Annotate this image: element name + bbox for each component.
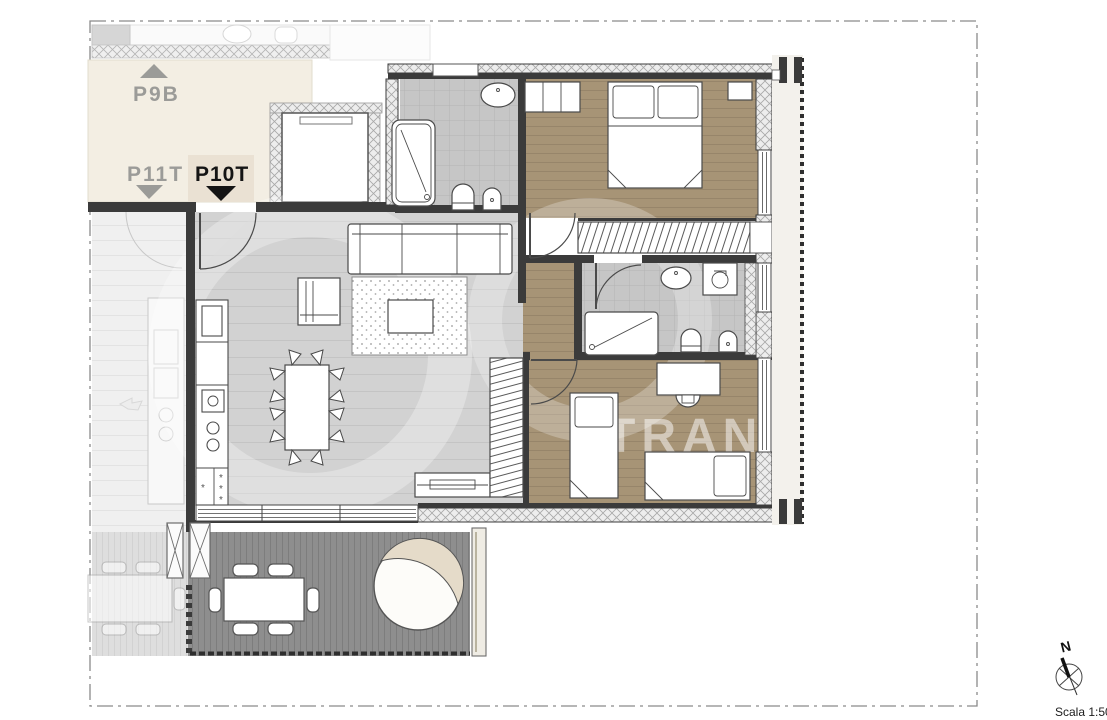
toilet <box>681 329 701 352</box>
washing-machine <box>703 263 737 295</box>
bidet <box>483 188 501 210</box>
terrace <box>88 523 486 656</box>
outdoor-chair <box>233 623 258 635</box>
elevator-door <box>300 117 352 124</box>
floor-plan-canvas: P9B P11T P10T TRAN <box>0 0 1107 720</box>
outdoor-chair <box>307 588 319 612</box>
terrace-planter-right <box>472 528 486 656</box>
stair-landing: P9B P11T P10T <box>88 60 382 203</box>
sideboard <box>415 473 490 497</box>
scale-label: Scala 1:50 <box>1055 705 1107 719</box>
nightstand <box>728 82 752 100</box>
pillar <box>794 499 802 524</box>
bathtub <box>392 120 435 206</box>
kitchen: * * * * <box>196 300 228 506</box>
round-daybed <box>374 538 464 630</box>
oven <box>202 306 222 336</box>
right-balcony <box>772 55 803 525</box>
dining-table <box>285 365 329 450</box>
coffee-table <box>388 300 433 333</box>
rug <box>352 277 467 355</box>
sink <box>661 267 691 289</box>
top-wall-niche <box>433 64 478 76</box>
bedroom2-window <box>758 358 771 452</box>
single-bed-horizontal <box>645 452 750 500</box>
hob-burner <box>207 422 219 434</box>
outdoor-chair <box>233 564 258 576</box>
hob-burner <box>207 439 219 451</box>
double-bed <box>608 82 702 188</box>
sink <box>481 83 515 107</box>
vent-symbol: * <box>219 473 223 484</box>
pillar <box>794 57 802 83</box>
unit-label-p10t: P10T <box>195 163 249 186</box>
outdoor-table <box>224 578 304 621</box>
bathroom2-window <box>758 263 771 312</box>
balcony-floor <box>772 55 803 525</box>
balcony-bracket <box>772 70 780 80</box>
elevator-cabin <box>282 113 368 202</box>
sofa <box>348 224 512 274</box>
wardrobe2 <box>490 358 523 497</box>
unit-label-p9b: P9B <box>133 83 180 106</box>
wardrobe1 <box>578 222 772 253</box>
outdoor-chair <box>268 564 293 576</box>
vent-symbol: * <box>219 495 223 506</box>
vent-symbol: * <box>219 484 223 495</box>
elevator <box>270 103 382 203</box>
pillar <box>779 499 787 524</box>
living-room-window <box>196 505 418 521</box>
dresser <box>525 82 580 112</box>
armchair <box>298 278 340 325</box>
neighbour-unit-top <box>92 25 430 60</box>
north-label: N <box>1059 638 1073 656</box>
pillow <box>714 456 746 496</box>
bedroom1-window <box>758 150 771 215</box>
vent-symbol: * <box>201 483 205 494</box>
pillow <box>575 397 613 427</box>
single-bed-vertical <box>570 393 618 498</box>
bidet <box>719 331 737 352</box>
toilet <box>452 184 474 210</box>
pillow <box>613 86 654 118</box>
unit-label-p11t: P11T <box>127 163 184 186</box>
compass: N <box>1056 638 1082 695</box>
shower-tray <box>585 312 658 355</box>
outdoor-chair <box>209 588 221 612</box>
outdoor-chair <box>268 623 293 635</box>
pillow <box>658 86 698 118</box>
service-shaft <box>745 263 756 355</box>
